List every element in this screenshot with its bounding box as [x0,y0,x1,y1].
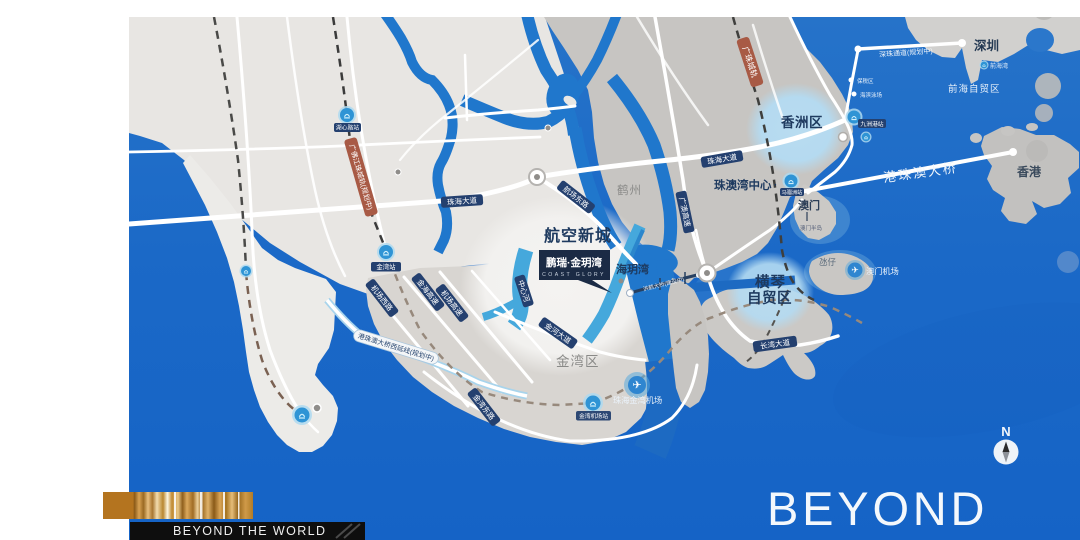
svg-text:·: · [774,180,777,191]
svg-text:香洲区: 香洲区 [780,114,823,130]
svg-text:鹤州: 鹤州 [617,183,642,197]
svg-text:前海自贸区: 前海自贸区 [948,83,1001,95]
svg-text:金湾机场站: 金湾机场站 [579,412,608,420]
svg-text:海滨泳场: 海滨泳场 [860,91,883,99]
svg-text:马骝洲站: 马骝洲站 [782,188,803,196]
svg-text:金湾区: 金湾区 [556,353,600,369]
svg-text:横琴: 横琴 [755,273,786,291]
svg-text:九洲港站: 九洲港站 [860,120,883,128]
svg-text:前海湾: 前海湾 [990,62,1008,70]
svg-text:航空新城: 航空新城 [544,226,612,245]
svg-text:保税区: 保税区 [857,77,874,85]
svg-text:澳门半岛: 澳门半岛 [800,224,823,232]
svg-text:BEYOND: BEYOND [767,482,988,535]
svg-text:✈: ✈ [632,380,641,392]
svg-text:BEYOND THE WORLD: BEYOND THE WORLD [173,524,326,538]
svg-text:✈: ✈ [851,265,859,275]
svg-text:N: N [1001,424,1010,439]
svg-text:湖心路站: 湖心路站 [336,124,359,132]
svg-text:鹏瑞·金玥湾: 鹏瑞·金玥湾 [546,256,602,269]
svg-text:自贸区: 自贸区 [747,289,792,307]
svg-text:珠澳湾中心: 珠澳湾中心 [714,178,772,192]
svg-text:氹仔: 氹仔 [819,257,837,267]
svg-text:海玥湾: 海玥湾 [616,262,649,276]
svg-text:澳门机场: 澳门机场 [866,266,899,276]
svg-text:COAST GLORY: COAST GLORY [542,272,606,278]
svg-text:澳门: 澳门 [798,198,820,212]
svg-text:珠海大道: 珠海大道 [447,195,478,207]
svg-text:金湾站: 金湾站 [376,262,396,271]
svg-text:香港: 香港 [1016,164,1042,179]
svg-text:深圳: 深圳 [974,38,999,53]
svg-text:珠海金湾机场: 珠海金湾机场 [613,395,662,405]
